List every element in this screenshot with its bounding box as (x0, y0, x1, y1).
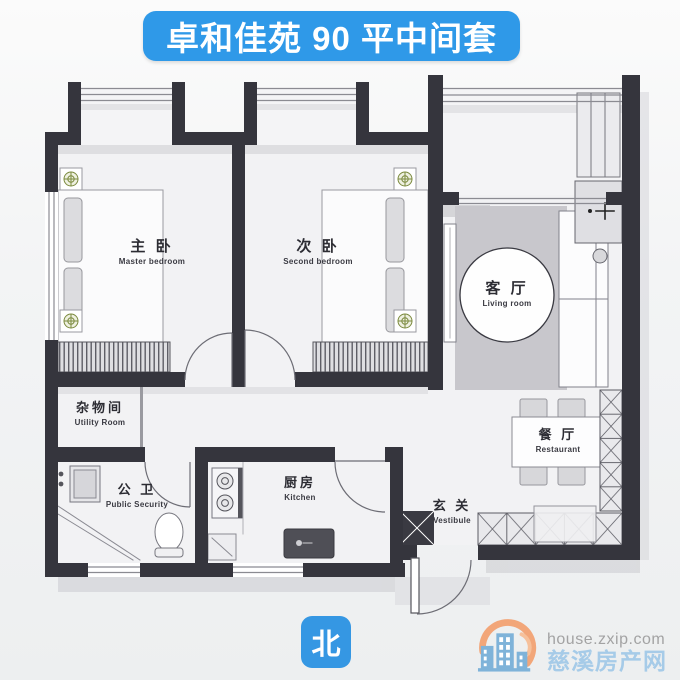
second-wardrobe (313, 342, 428, 372)
hall-cabinet-column (600, 390, 622, 511)
dining-table (512, 417, 604, 467)
title-banner: 卓和佳苑 90 平中间套 (143, 11, 520, 61)
toilet (155, 513, 183, 557)
site-watermark: house.zxip.com 慈溪房产网 (473, 613, 673, 673)
structural-column (400, 511, 434, 545)
watermark-name: 慈溪房产网 (547, 649, 667, 673)
north-label: 北 (311, 621, 340, 663)
kitchen-window (233, 563, 303, 577)
floor-plan-canvas (0, 0, 680, 680)
tv-unit (444, 224, 456, 342)
master-wardrobe (58, 342, 170, 372)
floor-plan-page: { "title": { "text": "卓和佳苑 90 平中间套" }, "… (0, 0, 680, 680)
north-compass-badge: 北 (301, 616, 351, 668)
master-side-window (45, 192, 58, 340)
buildings-logo-icon (473, 613, 541, 673)
watermark-url: house.zxip.com (547, 632, 667, 649)
bathroom-window (88, 563, 140, 577)
title-text: 卓和佳苑 90 平中间套 (166, 12, 497, 60)
balcony-cabinet (577, 93, 620, 177)
living-room-label-plate (460, 248, 554, 342)
kitchen-sink (284, 529, 334, 558)
kitchen-corner-unit (208, 534, 236, 560)
